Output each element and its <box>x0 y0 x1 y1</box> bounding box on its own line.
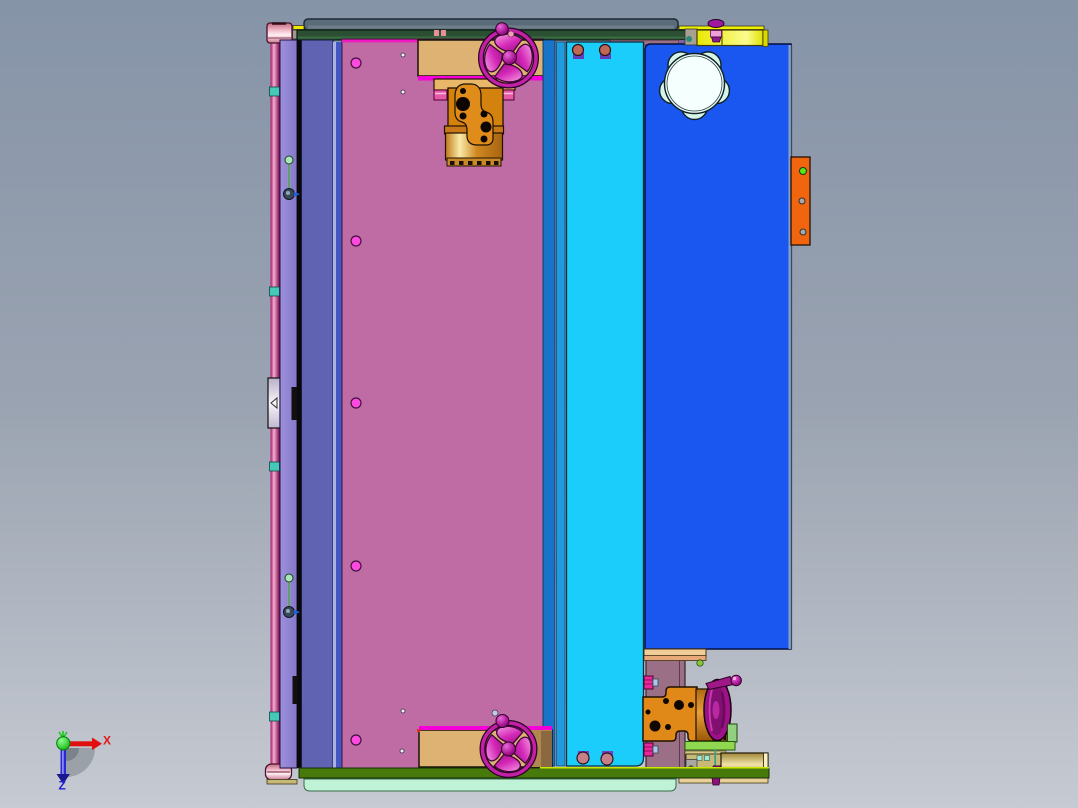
svg-text:Z: Z <box>59 779 66 793</box>
svg-text:X: X <box>103 734 111 748</box>
